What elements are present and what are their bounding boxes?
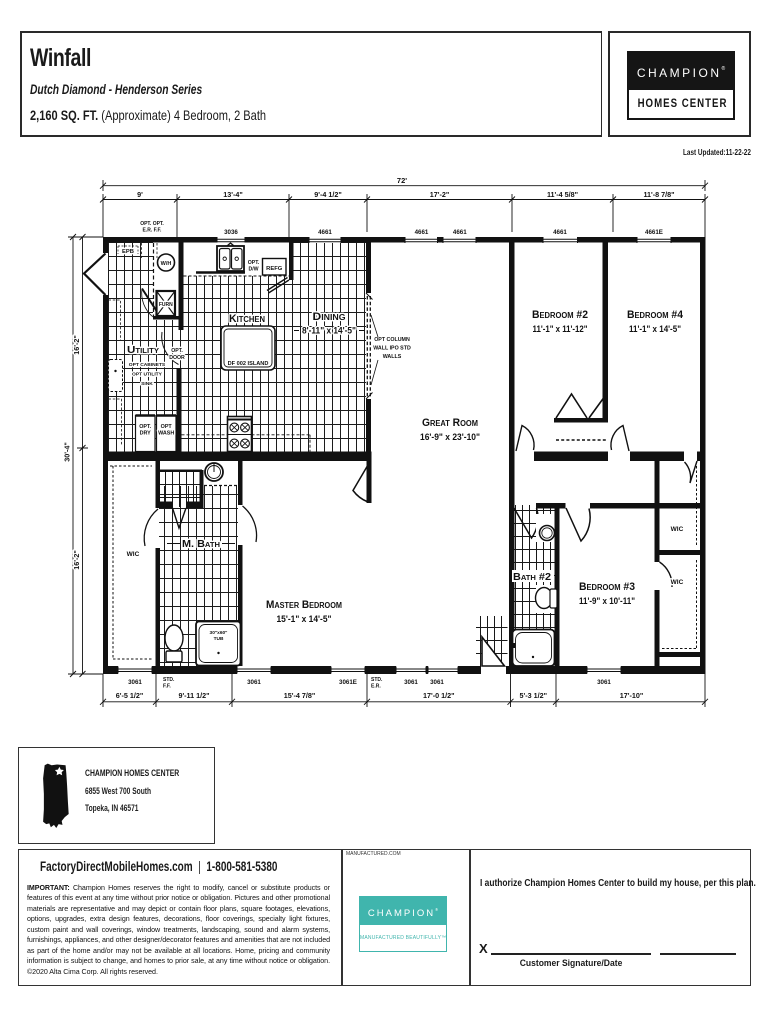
svg-text:OPT: OPT xyxy=(161,424,173,430)
svg-text:17'-0 1/2": 17'-0 1/2" xyxy=(423,691,455,700)
svg-text:OPT.: OPT. xyxy=(248,260,260,266)
svg-text:STD.: STD. xyxy=(163,677,175,683)
svg-text:3061: 3061 xyxy=(597,679,611,686)
svg-text:Great Room: Great Room xyxy=(422,417,478,429)
svg-text:16'-9" x 23'-10": 16'-9" x 23'-10" xyxy=(420,432,480,442)
svg-text:9': 9' xyxy=(137,190,143,199)
svg-text:OPT.: OPT. xyxy=(171,348,183,354)
svg-text:EPB: EPB xyxy=(122,249,134,255)
svg-text:TUB: TUB xyxy=(214,636,224,642)
svg-text:OPT CABINETS: OPT CABINETS xyxy=(129,362,166,368)
svg-text:SINK: SINK xyxy=(141,381,153,387)
svg-text:6'-5 1/2": 6'-5 1/2" xyxy=(116,691,144,700)
svg-text:Bedroom #2: Bedroom #2 xyxy=(532,309,588,321)
svg-text:Dining: Dining xyxy=(313,311,346,323)
svg-text:WIC: WIC xyxy=(671,579,684,586)
svg-text:3061E: 3061E xyxy=(339,679,357,686)
svg-text:E.R. F.F.: E.R. F.F. xyxy=(143,228,163,234)
svg-text:Utility: Utility xyxy=(127,344,159,356)
svg-text:3061: 3061 xyxy=(404,679,418,686)
svg-text:E.R.: E.R. xyxy=(371,684,381,690)
svg-text:11'-9" x 10'-11": 11'-9" x 10'-11" xyxy=(579,596,635,606)
svg-text:REFG: REFG xyxy=(266,266,283,272)
svg-text:11'-4 5/8": 11'-4 5/8" xyxy=(547,190,578,199)
svg-text:OPT.: OPT. xyxy=(139,424,151,430)
svg-text:WASH: WASH xyxy=(158,431,174,437)
svg-text:Bath #2: Bath #2 xyxy=(513,572,551,583)
svg-text:3061: 3061 xyxy=(247,679,261,686)
svg-text:4661: 4661 xyxy=(453,229,467,236)
svg-text:Kitchen: Kitchen xyxy=(229,313,265,325)
svg-text:11'-8 7/8": 11'-8 7/8" xyxy=(643,190,674,199)
svg-text:5'-3 1/2": 5'-3 1/2" xyxy=(520,691,548,700)
svg-text:DF 002 ISLAND: DF 002 ISLAND xyxy=(228,361,269,367)
svg-text:9'-11 1/2": 9'-11 1/2" xyxy=(178,691,209,700)
svg-text:11'-1" x 11'-12": 11'-1" x 11'-12" xyxy=(533,324,588,334)
svg-text:4661: 4661 xyxy=(318,229,332,236)
svg-text:9'-4 1/2": 9'-4 1/2" xyxy=(314,190,342,199)
svg-text:OPT UTILITY: OPT UTILITY xyxy=(132,372,163,378)
svg-text:Bedroom #3: Bedroom #3 xyxy=(579,581,635,593)
svg-text:WALLS: WALLS xyxy=(383,354,402,360)
svg-text:3061: 3061 xyxy=(430,679,444,686)
svg-text:16'-2": 16'-2" xyxy=(72,550,81,570)
svg-text:WIC: WIC xyxy=(127,551,140,558)
svg-text:Master Bedroom: Master Bedroom xyxy=(266,599,342,611)
svg-text:F.F.: F.F. xyxy=(163,684,171,690)
svg-text:11'-1" x 14'-5": 11'-1" x 14'-5" xyxy=(629,324,681,334)
svg-text:Bedroom #4: Bedroom #4 xyxy=(627,309,684,321)
svg-text:W/H: W/H xyxy=(161,261,172,267)
svg-text:17'-2": 17'-2" xyxy=(430,190,450,199)
svg-text:13'-4": 13'-4" xyxy=(223,190,243,199)
svg-text:FURN: FURN xyxy=(159,302,173,308)
svg-text:30"x60": 30"x60" xyxy=(210,630,228,636)
svg-text:M. Bath: M. Bath xyxy=(182,539,220,550)
svg-text:30'-4": 30'-4" xyxy=(63,442,72,462)
svg-text:72': 72' xyxy=(397,176,407,185)
svg-text:17'-10": 17'-10" xyxy=(620,691,644,700)
svg-text:15'-1" x 14'-5": 15'-1" x 14'-5" xyxy=(277,614,332,624)
svg-text:4661E: 4661E xyxy=(645,229,663,236)
svg-text:DOOR: DOOR xyxy=(169,355,185,361)
svg-text:16'-2": 16'-2" xyxy=(72,335,81,355)
svg-text:4661: 4661 xyxy=(553,229,567,236)
svg-text:DRY: DRY xyxy=(140,431,152,437)
svg-text:4661: 4661 xyxy=(415,229,429,236)
svg-text:8'-11" x 14'-5": 8'-11" x 14'-5" xyxy=(302,326,356,336)
svg-text:WALL IPO STD: WALL IPO STD xyxy=(373,346,411,352)
svg-text:STD.: STD. xyxy=(371,677,383,683)
svg-text:WIC: WIC xyxy=(671,526,684,533)
svg-text:3036: 3036 xyxy=(224,229,238,236)
svg-text:OPT COLUMN: OPT COLUMN xyxy=(374,337,410,343)
svg-text:15'-4 7/8": 15'-4 7/8" xyxy=(284,691,316,700)
svg-text:D/W: D/W xyxy=(248,267,258,273)
svg-text:3061: 3061 xyxy=(128,679,142,686)
svg-text:OPT. OPT.: OPT. OPT. xyxy=(140,221,164,227)
